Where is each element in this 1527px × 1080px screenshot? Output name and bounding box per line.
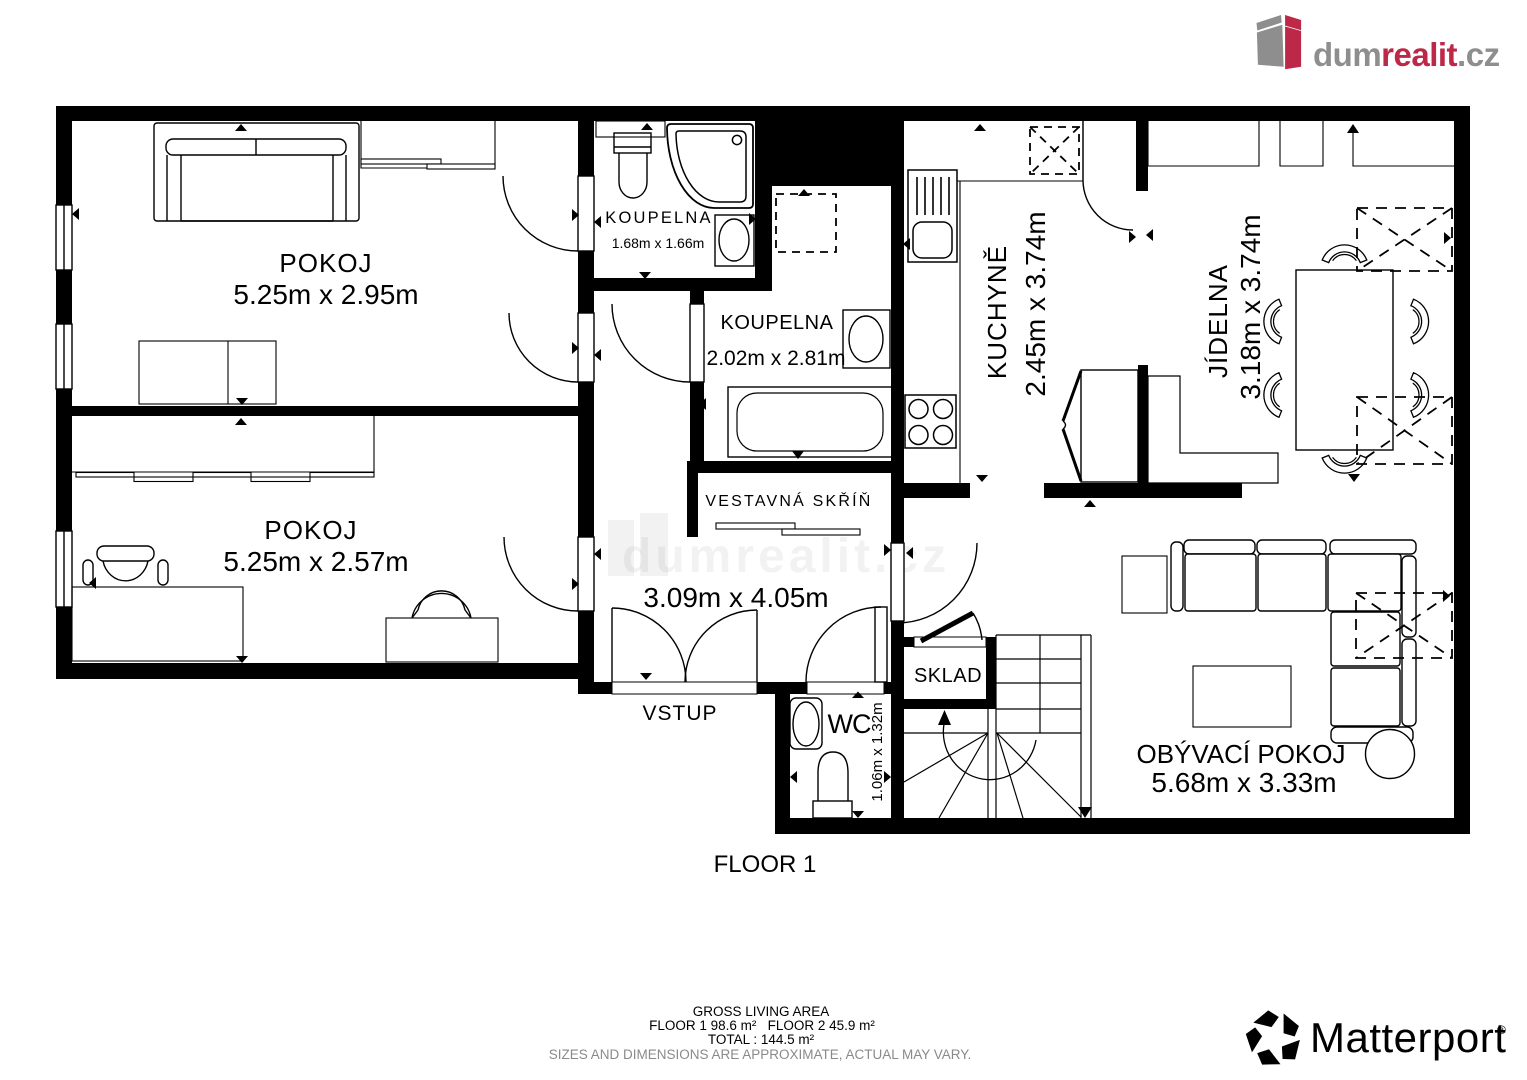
svg-text:2.02m x 2.81m: 2.02m x 2.81m [707, 347, 846, 370]
svg-text:VSTUP: VSTUP [642, 702, 717, 725]
svg-text:1.68m x 1.66m: 1.68m x 1.66m [612, 235, 705, 251]
svg-text:VESTAVNÁ SKŘÍŇ: VESTAVNÁ SKŘÍŇ [705, 491, 872, 510]
svg-text:KOUPELNA: KOUPELNA [605, 209, 712, 227]
svg-text:3.18m x 3.74m: 3.18m x 3.74m [1235, 214, 1266, 399]
svg-text:5.25m x 2.95m: 5.25m x 2.95m [233, 279, 418, 310]
svg-text:dumrealit.cz: dumrealit.cz [1313, 36, 1500, 73]
svg-text:POKOJ: POKOJ [264, 515, 357, 545]
svg-text:FLOOR 1: FLOOR 1 [714, 851, 817, 878]
svg-text:OBÝVACÍ POKOJ: OBÝVACÍ POKOJ [1136, 739, 1345, 769]
svg-text:3.09m x 4.05m: 3.09m x 4.05m [643, 582, 828, 613]
svg-text:SKLAD: SKLAD [914, 665, 982, 687]
svg-text:FLOOR 1 98.6 m² FLOOR 2 45.9: FLOOR 1 98.6 m² FLOOR 2 45.9 m² [649, 1018, 875, 1033]
svg-text:GROSS LIVING AREA: GROSS LIVING AREA [693, 1004, 830, 1019]
svg-text:2.45m x 3.74m: 2.45m x 3.74m [1020, 211, 1051, 396]
svg-text:JÍDELNA: JÍDELNA [1203, 264, 1233, 378]
svg-text:KOUPELNA: KOUPELNA [721, 312, 834, 334]
svg-text:WC: WC [828, 709, 871, 739]
svg-text:SIZES AND DIMENSIONS ARE APPRO: SIZES AND DIMENSIONS ARE APPROXIMATE, AC… [549, 1047, 972, 1062]
svg-text:5.68m x 3.33m: 5.68m x 3.33m [1151, 767, 1336, 798]
svg-text:TOTAL : 144.5 m²: TOTAL : 144.5 m² [708, 1032, 815, 1047]
svg-text:KUCHYNĚ: KUCHYNĚ [982, 245, 1012, 379]
svg-text:®: ® [1497, 1023, 1506, 1037]
svg-text:1.06m x 1.32m: 1.06m x 1.32m [869, 702, 886, 801]
svg-text:5.25m x 2.57m: 5.25m x 2.57m [223, 546, 408, 577]
svg-text:POKOJ: POKOJ [279, 248, 372, 278]
svg-text:Matterport: Matterport [1310, 1014, 1506, 1061]
